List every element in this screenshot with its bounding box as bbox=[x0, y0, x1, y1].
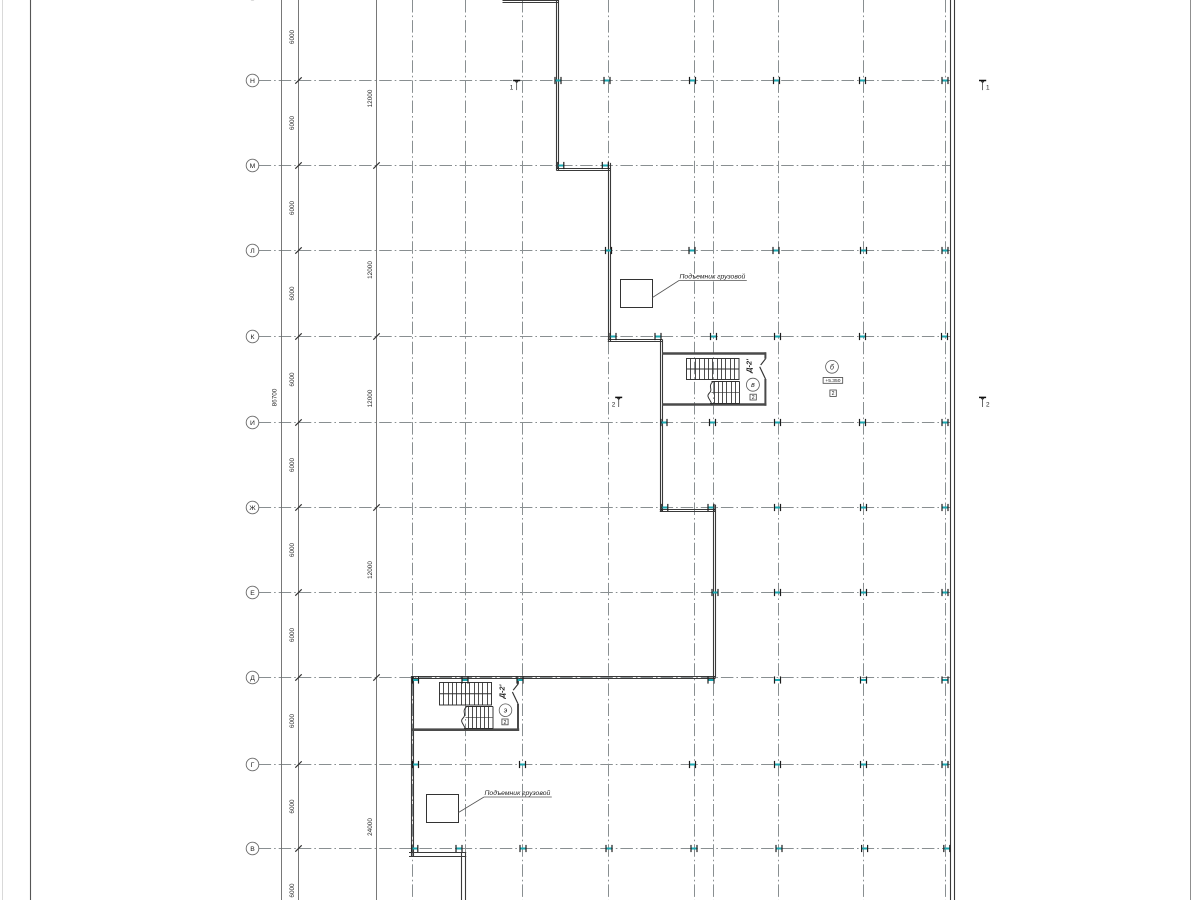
svg-text:6000: 6000 bbox=[289, 883, 296, 898]
svg-text:2: 2 bbox=[832, 391, 835, 397]
svg-text:В: В bbox=[250, 846, 255, 853]
svg-text:Подъемник грузовой: Подъемник грузовой bbox=[680, 273, 746, 281]
svg-text:1: 1 bbox=[986, 85, 990, 92]
svg-text:6000: 6000 bbox=[289, 372, 296, 387]
svg-text:Л: Л bbox=[250, 248, 254, 255]
svg-text:+5.350: +5.350 bbox=[825, 378, 840, 384]
svg-text:6000: 6000 bbox=[289, 799, 296, 814]
svg-text:2: 2 bbox=[986, 402, 990, 409]
svg-text:Ж: Ж bbox=[249, 505, 256, 512]
svg-text:6000: 6000 bbox=[289, 286, 296, 301]
svg-text:12000: 12000 bbox=[367, 261, 374, 279]
svg-text:Д-2': Д-2' bbox=[498, 684, 507, 699]
svg-text:М: М bbox=[250, 163, 256, 170]
svg-text:86700: 86700 bbox=[271, 388, 278, 406]
svg-text:12000: 12000 bbox=[367, 89, 374, 107]
svg-text:Д-2': Д-2' bbox=[745, 359, 754, 374]
svg-text:э: э bbox=[504, 708, 508, 715]
svg-text:6000: 6000 bbox=[289, 115, 296, 130]
svg-text:12000: 12000 bbox=[367, 389, 374, 407]
svg-text:2: 2 bbox=[504, 720, 507, 726]
svg-text:24000: 24000 bbox=[367, 818, 374, 836]
svg-text:Г: Г bbox=[251, 762, 255, 769]
svg-text:6000: 6000 bbox=[289, 457, 296, 472]
svg-text:6000: 6000 bbox=[289, 29, 296, 44]
svg-text:6000: 6000 bbox=[289, 542, 296, 557]
svg-text:1: 1 bbox=[510, 85, 514, 92]
svg-text:2: 2 bbox=[612, 402, 616, 409]
svg-text:Подъемник грузовой: Подъемник грузовой bbox=[485, 789, 551, 797]
svg-text:Д: Д bbox=[250, 675, 255, 682]
svg-text:И: И bbox=[250, 420, 255, 427]
svg-text:6000: 6000 bbox=[289, 713, 296, 728]
svg-text:Н: Н bbox=[250, 78, 255, 85]
svg-text:Е: Е bbox=[250, 590, 255, 597]
svg-text:12000: 12000 bbox=[367, 561, 374, 579]
svg-text:в: в bbox=[751, 382, 755, 389]
svg-text:6000: 6000 bbox=[289, 627, 296, 642]
svg-text:6000: 6000 bbox=[289, 200, 296, 215]
svg-text:2: 2 bbox=[752, 395, 755, 401]
svg-text:К: К bbox=[251, 334, 255, 341]
